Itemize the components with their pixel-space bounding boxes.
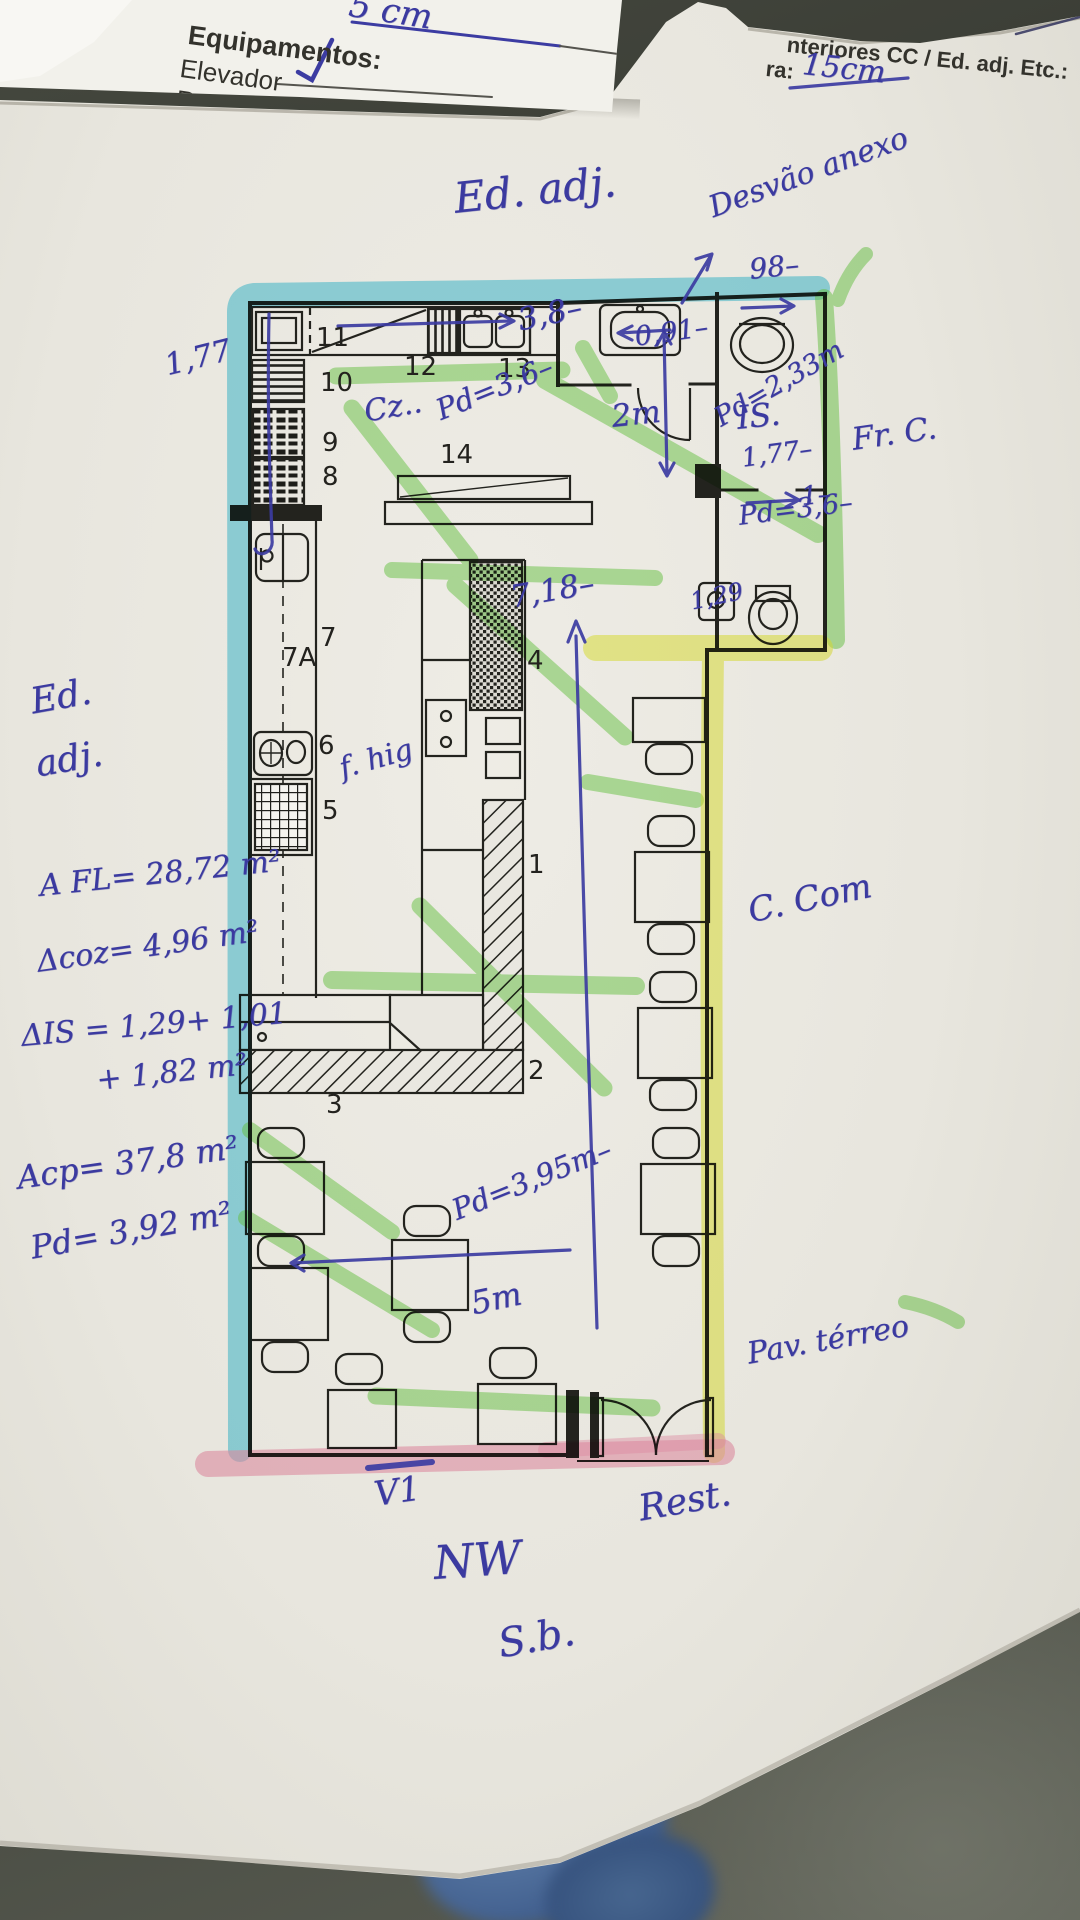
plan-number-14: 14 — [440, 442, 473, 468]
header-ra-label: ra: — [765, 58, 795, 83]
plan-number-4: 4 — [527, 648, 544, 674]
pen-corner-line — [1016, 17, 1080, 34]
plan-number-3: 3 — [326, 1092, 343, 1118]
annotation-ed-left-1: Ed. — [28, 674, 94, 720]
plan-number-5: 5 — [322, 798, 339, 824]
plan-number-7: 7 — [320, 625, 337, 651]
pen-arrow-toilet — [742, 299, 794, 313]
plan-paper-sheet: nteriores CC / Ed. adj. Etc.: ra: 15cm 1… — [0, 0, 1080, 1920]
kitchen-top-counter — [252, 307, 558, 355]
annotation-is: IS. — [735, 397, 782, 433]
plan-number-2: 2 — [528, 1058, 545, 1084]
annotation-nw: NW — [432, 1534, 523, 1586]
photo-of-floor-plan: nteriores CC / Ed. adj. Etc.: ra: 15cm 1… — [0, 0, 1080, 1920]
annotation-dim-98: 98– — [748, 251, 800, 284]
annotation-dim-5m: 5m — [468, 1277, 524, 1319]
plan-number-1: 1 — [528, 852, 545, 878]
plan-number-12: 12 — [404, 354, 437, 380]
annotation-dim-2m: 2m — [610, 397, 662, 433]
header-ra-value: 15cm — [801, 50, 887, 89]
plan-number-8: 8 — [322, 464, 339, 490]
field-rule-1 — [277, 84, 492, 97]
plan-number-6: 6 — [318, 733, 335, 759]
plan-number-7a: 7A — [282, 645, 316, 671]
field-rule-top — [560, 46, 618, 54]
annotation-v1: V1 — [372, 1472, 422, 1512]
plan-number-11: 11 — [316, 325, 349, 351]
plan-number-9: 9 — [322, 430, 339, 456]
plan-number-10: 10 — [320, 370, 353, 396]
